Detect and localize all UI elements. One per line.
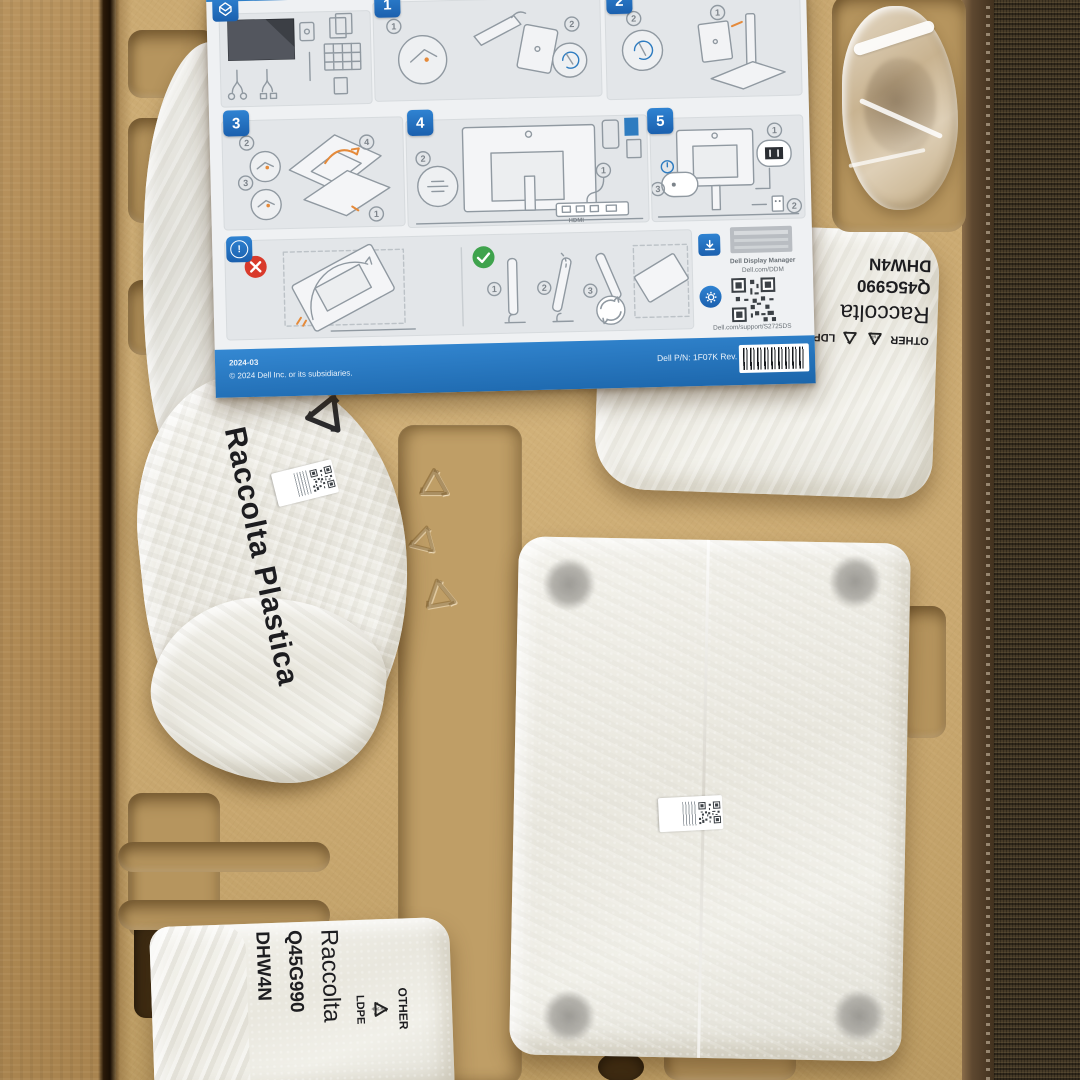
step5-illustration: 123 <box>650 115 804 221</box>
barcode-bars <box>743 346 806 370</box>
svg-text:1: 1 <box>772 125 777 135</box>
step-badge-4: 4 <box>407 109 434 136</box>
material-label: OTHER <box>395 987 410 1029</box>
download-badge <box>698 234 721 257</box>
svg-text:1: 1 <box>391 21 396 31</box>
bag-crinkle <box>149 924 251 1080</box>
panel-kit-contents <box>218 10 372 108</box>
wrapped-stand-base <box>509 536 911 1061</box>
sticker-text-lines <box>682 801 697 826</box>
svg-text:3: 3 <box>243 178 248 188</box>
material-label: LDPE <box>354 995 367 1025</box>
ddm-thumbnail <box>730 226 793 254</box>
embossed-recycle-icon <box>412 462 456 502</box>
svg-text:2: 2 <box>244 138 249 148</box>
qr-code <box>309 465 336 492</box>
svg-text:2: 2 <box>420 154 425 164</box>
recycle-icon: 비닐류 <box>371 998 392 1021</box>
step4-illustration: 21 HDMI <box>406 115 649 227</box>
barcode <box>739 343 810 373</box>
bag-label-text: Raccolta <box>309 928 353 1080</box>
step-badge-3: 3 <box>223 110 250 137</box>
step1-illustration: 12 <box>373 0 601 101</box>
step-badge-5: 5 <box>647 108 674 135</box>
bag-label-block: OTHER 비닐류 LDPE Raccolta Q45G990 DHW4N <box>245 926 417 1080</box>
kit-badge <box>212 0 239 22</box>
panel-caution: 123 <box>224 229 694 340</box>
svg-text:1: 1 <box>715 7 720 17</box>
svg-text:1: 1 <box>374 209 379 219</box>
bag-zip-seal <box>852 19 936 56</box>
footer-copyright: © 2024 Dell Inc. or its subsidiaries. <box>229 369 352 382</box>
gear-badge <box>699 285 722 308</box>
panel-step-4: 21 HDMI <box>405 114 650 228</box>
box-contents-icon <box>216 0 234 18</box>
hdmi-port-label: HDMI <box>569 218 585 224</box>
svg-text:1: 1 <box>492 284 497 294</box>
caution-illustration: 123 <box>225 230 693 339</box>
setup-instruction-sheet: 12 1 21 2 <box>206 0 816 398</box>
svg-text:2: 2 <box>542 283 547 293</box>
unboxing-photo: LDB0U1BX Raccolta Plastica OTHER 비닐류 LDP… <box>0 0 1080 1080</box>
material-label: OTHER <box>890 333 929 346</box>
panel-step-2: 21 <box>604 0 802 100</box>
wrapped-part-bottom-left: OTHER 비닐류 LDPE Raccolta Q45G990 DHW4N <box>149 917 455 1080</box>
svg-text:3: 3 <box>588 286 593 296</box>
box-edge-corrugation <box>986 0 990 1080</box>
korean-material-text: 비닐류 <box>371 1006 385 1012</box>
bag-highlight <box>848 148 925 168</box>
korean-material-text: 비닐류 <box>870 335 881 340</box>
panel-step-1: 12 <box>372 0 602 102</box>
gear-icon <box>704 290 717 303</box>
svg-text:4: 4 <box>364 137 369 147</box>
pulp-groove <box>118 842 330 872</box>
svg-text:2: 2 <box>569 19 574 29</box>
cardboard-flap <box>0 0 104 1080</box>
qr-code <box>698 801 721 824</box>
kit-contents-illustration <box>220 11 372 107</box>
svg-text:1: 1 <box>601 165 606 175</box>
downloads-column: Dell Display Manager Dell.com/DDM Dell.c… <box>696 223 807 332</box>
box-side-wall <box>962 0 996 1080</box>
package-sticker <box>658 795 724 832</box>
download-icon <box>703 238 716 251</box>
qr-code <box>731 277 776 322</box>
carpet-floor <box>994 0 1080 1080</box>
recycle-icon: 비닐류 <box>865 329 886 348</box>
footer-date: 2024-03 <box>229 358 259 369</box>
step-badge-2: 2 <box>606 0 633 14</box>
svg-text:2: 2 <box>792 201 797 211</box>
embossed-recycle-icon <box>413 568 466 617</box>
svg-text:2: 2 <box>631 13 636 23</box>
step2-illustration: 21 <box>605 0 801 99</box>
step-badge-1: 1 <box>374 0 401 18</box>
warning-icon: ! <box>230 240 248 258</box>
caution-badge: ! <box>226 236 253 263</box>
bag-part-number: Q45G990 <box>277 930 315 1080</box>
support-url: Dell.com/support/S2725DS <box>698 322 806 333</box>
recycle-icon <box>840 329 861 348</box>
step3-illustration: 23 41 <box>222 117 405 229</box>
svg-text:3: 3 <box>655 184 660 194</box>
bag-code: DHW4N <box>245 931 283 1080</box>
ddm-url: Dell.com/DDM <box>723 265 803 275</box>
